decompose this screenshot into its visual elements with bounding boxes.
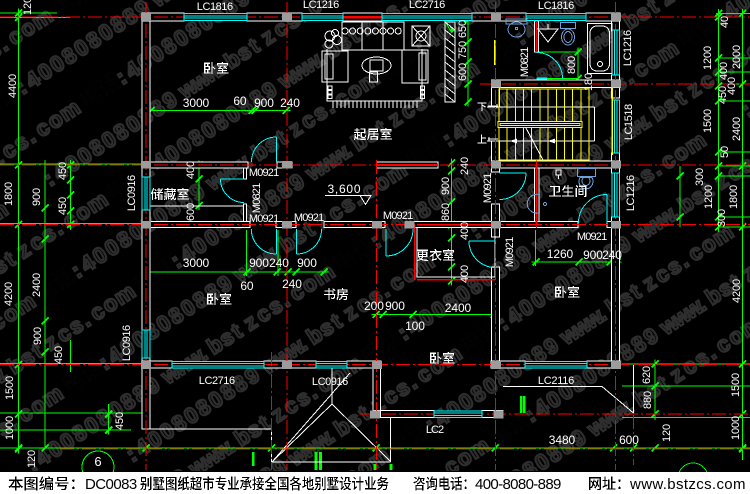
svg-text:4200: 4200 [731,279,743,303]
svg-text:M0921: M0921 [249,213,279,225]
svg-text:LC0916: LC0916 [121,325,133,361]
svg-text:M0821: M0821 [519,47,531,77]
svg-text:900: 900 [583,248,603,262]
svg-text:LC1216: LC1216 [625,175,637,211]
svg-text:6: 6 [94,454,101,469]
svg-text:120: 120 [22,0,34,15]
svg-text:60: 60 [240,279,254,293]
svg-text:4200: 4200 [3,282,15,306]
svg-text:1260: 1260 [547,247,574,261]
svg-text:600: 600 [457,63,469,81]
svg-text:M0921: M0921 [504,237,516,267]
svg-text:900: 900 [31,188,43,206]
svg-text:650: 650 [457,20,469,38]
svg-text:1200: 1200 [702,46,714,70]
svg-text:LC2116: LC2116 [538,375,574,387]
svg-text:860: 860 [440,203,452,221]
svg-text:600: 600 [619,433,639,447]
svg-text:400: 400 [726,77,738,95]
svg-text:M0821: M0821 [251,183,263,213]
svg-text:3480: 3480 [549,433,576,447]
svg-text:2000: 2000 [731,45,743,69]
svg-text:900: 900 [385,299,405,313]
svg-text:www.bstzcs.com: www.bstzcs.com [629,476,746,493]
svg-text:100: 100 [405,319,425,333]
svg-text:DC0083: DC0083 [85,476,137,493]
svg-text:LC1216: LC1216 [303,0,339,11]
svg-text:900: 900 [254,96,274,110]
svg-text:LC1216: LC1216 [622,30,634,66]
svg-text:1800: 1800 [728,185,740,209]
svg-text:1500: 1500 [730,373,742,397]
svg-text:240: 240 [282,277,302,291]
svg-text:450: 450 [57,162,69,180]
svg-text:450: 450 [114,412,126,430]
svg-text:900: 900 [297,256,317,270]
svg-text:400: 400 [459,222,471,240]
svg-text:1200: 1200 [703,185,715,209]
svg-text:120: 120 [26,450,38,468]
svg-text:1500: 1500 [4,376,16,400]
svg-text:400: 400 [459,265,471,283]
svg-text:200: 200 [364,299,384,313]
svg-text:1000: 1000 [730,416,742,440]
svg-text:M0921: M0921 [482,173,494,203]
svg-text:LC1816: LC1816 [197,1,233,13]
svg-text:LC2716: LC2716 [199,375,235,387]
svg-text:800: 800 [566,56,578,74]
svg-text:240: 240 [602,248,622,262]
svg-text:M0921: M0921 [294,212,324,224]
svg-text:2400: 2400 [31,273,43,297]
svg-text:300: 300 [716,209,728,227]
svg-text:50: 50 [719,146,731,158]
svg-text:LC1816: LC1816 [538,0,574,12]
svg-text:400: 400 [185,161,197,179]
svg-text:LC0916: LC0916 [126,175,138,211]
svg-text:60: 60 [233,94,247,108]
svg-text:1500: 1500 [702,109,714,133]
svg-text:LC2716: LC2716 [409,0,445,11]
svg-text:620: 620 [641,366,653,384]
svg-text:3,600: 3,600 [328,182,361,196]
svg-text:900: 900 [32,327,44,345]
svg-text:240: 240 [269,256,289,270]
svg-text:LC2: LC2 [426,424,444,436]
svg-text:M0921: M0921 [577,231,607,243]
svg-text:LC0916: LC0916 [312,376,348,388]
svg-text:300: 300 [694,168,706,186]
svg-text:180: 180 [583,73,595,91]
svg-text:750: 750 [457,41,469,59]
svg-text:3000: 3000 [183,256,210,270]
svg-text:3000: 3000 [183,96,210,110]
svg-text:40: 40 [719,16,731,28]
svg-text:880: 880 [642,391,654,409]
svg-text:2400: 2400 [445,301,472,315]
svg-text:4400: 4400 [7,74,19,98]
svg-text:240: 240 [280,96,300,110]
svg-text:LC1518: LC1518 [623,104,635,140]
svg-text:450: 450 [53,346,65,364]
svg-text:M0921: M0921 [383,210,413,222]
svg-text:2400: 2400 [731,117,743,141]
svg-text:1800: 1800 [3,182,15,206]
svg-text:900: 900 [440,177,452,195]
svg-text:400-8080-889: 400-8080-889 [475,476,561,493]
svg-text:240: 240 [459,157,471,175]
svg-text:600: 600 [185,203,197,221]
svg-text:1000: 1000 [4,416,16,440]
svg-text:900: 900 [249,256,269,270]
svg-text:450: 450 [57,197,69,215]
svg-text:M0921: M0921 [249,167,279,179]
svg-text:120: 120 [661,424,673,442]
